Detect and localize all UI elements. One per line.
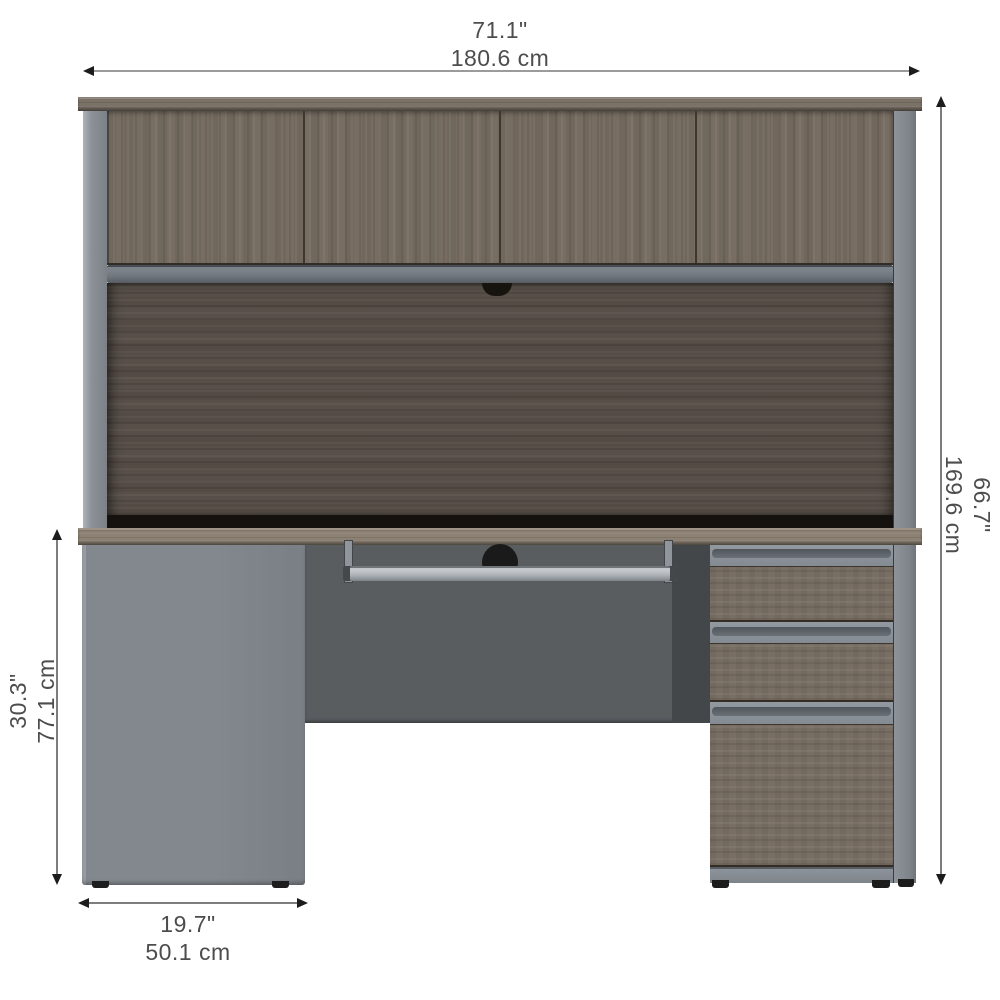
dimension-diagram: 71.1" 180.6 cm 66.7" 169.6 cm 30.3" 77.1… — [0, 0, 1000, 1000]
desk-height-cm: 77.1 cm — [32, 658, 60, 743]
drawer-front-1 — [710, 566, 893, 622]
overall-height-cm: 169.6 cm — [940, 456, 968, 555]
overall-width-cm: 180.6 cm — [78, 44, 922, 72]
arrowhead-down-icon — [936, 874, 946, 885]
left-pedestal-rear-leg — [303, 856, 314, 885]
pedestal-top-channel — [710, 545, 893, 566]
hutch-door-divider — [499, 111, 501, 263]
drawer-pull-channel-1 — [710, 622, 893, 643]
hutch-door-divider — [695, 111, 697, 263]
desk-height-inches: 30.3" — [4, 673, 32, 728]
arrowhead-up-icon — [936, 96, 946, 107]
left-pedestal-side-panel — [82, 545, 305, 885]
drawer-front-2 — [710, 643, 893, 702]
arrowhead-left-icon — [83, 66, 94, 76]
hutch-doors-row — [107, 111, 893, 265]
pedestal-width-label: 19.7" 50.1 cm — [72, 910, 304, 966]
overall-width-inches: 71.1" — [78, 16, 922, 44]
pedestal-base-strip — [710, 867, 893, 883]
right-pedestal-foot — [872, 880, 890, 888]
drawer-pull-groove-1 — [712, 627, 891, 636]
shelf-shadow-strip — [107, 515, 893, 528]
pedestal-width-cm: 50.1 cm — [72, 938, 304, 966]
right-pedestal-side-panel — [893, 545, 916, 883]
overall-width-label: 71.1" 180.6 cm — [78, 16, 922, 72]
right-side-foot — [898, 879, 914, 887]
hutch-door-divider — [303, 111, 305, 263]
file-drawer-front — [710, 724, 893, 867]
pedestal-width-inches: 19.7" — [72, 910, 304, 938]
drawer-pull-channel-2 — [710, 702, 893, 724]
overall-width-dimension-line — [92, 70, 909, 72]
arrowhead-up-icon — [52, 529, 62, 540]
hutch-top-board — [78, 97, 922, 111]
arrowhead-right-icon — [909, 66, 920, 76]
left-pedestal-foot — [92, 881, 109, 888]
hutch-shelf-rail — [107, 265, 893, 283]
left-pedestal-foot — [272, 881, 289, 888]
arrowhead-right-icon — [297, 898, 308, 908]
keyboard-tray-rail — [343, 566, 677, 581]
hutch-right-side-panel — [893, 111, 916, 530]
drawer-pull-groove-2 — [712, 707, 891, 716]
pedestal-top-groove — [712, 549, 891, 558]
desk-height-label: 30.3" 77.1 cm — [4, 658, 60, 743]
hutch-open-shelf-back-panel — [107, 283, 893, 515]
desktop-surface — [78, 528, 922, 545]
arrowhead-down-icon — [52, 874, 62, 885]
pedestal-width-dimension-line — [87, 902, 300, 904]
right-pedestal — [710, 545, 893, 885]
right-pedestal-foot — [712, 880, 729, 888]
overall-height-inches: 66.7" — [968, 477, 996, 532]
arrowhead-left-icon — [78, 898, 89, 908]
hutch-left-side-panel — [83, 111, 107, 530]
overall-height-label: 66.7" 169.6 cm — [940, 456, 996, 555]
modesty-panel-shadow — [672, 545, 710, 723]
